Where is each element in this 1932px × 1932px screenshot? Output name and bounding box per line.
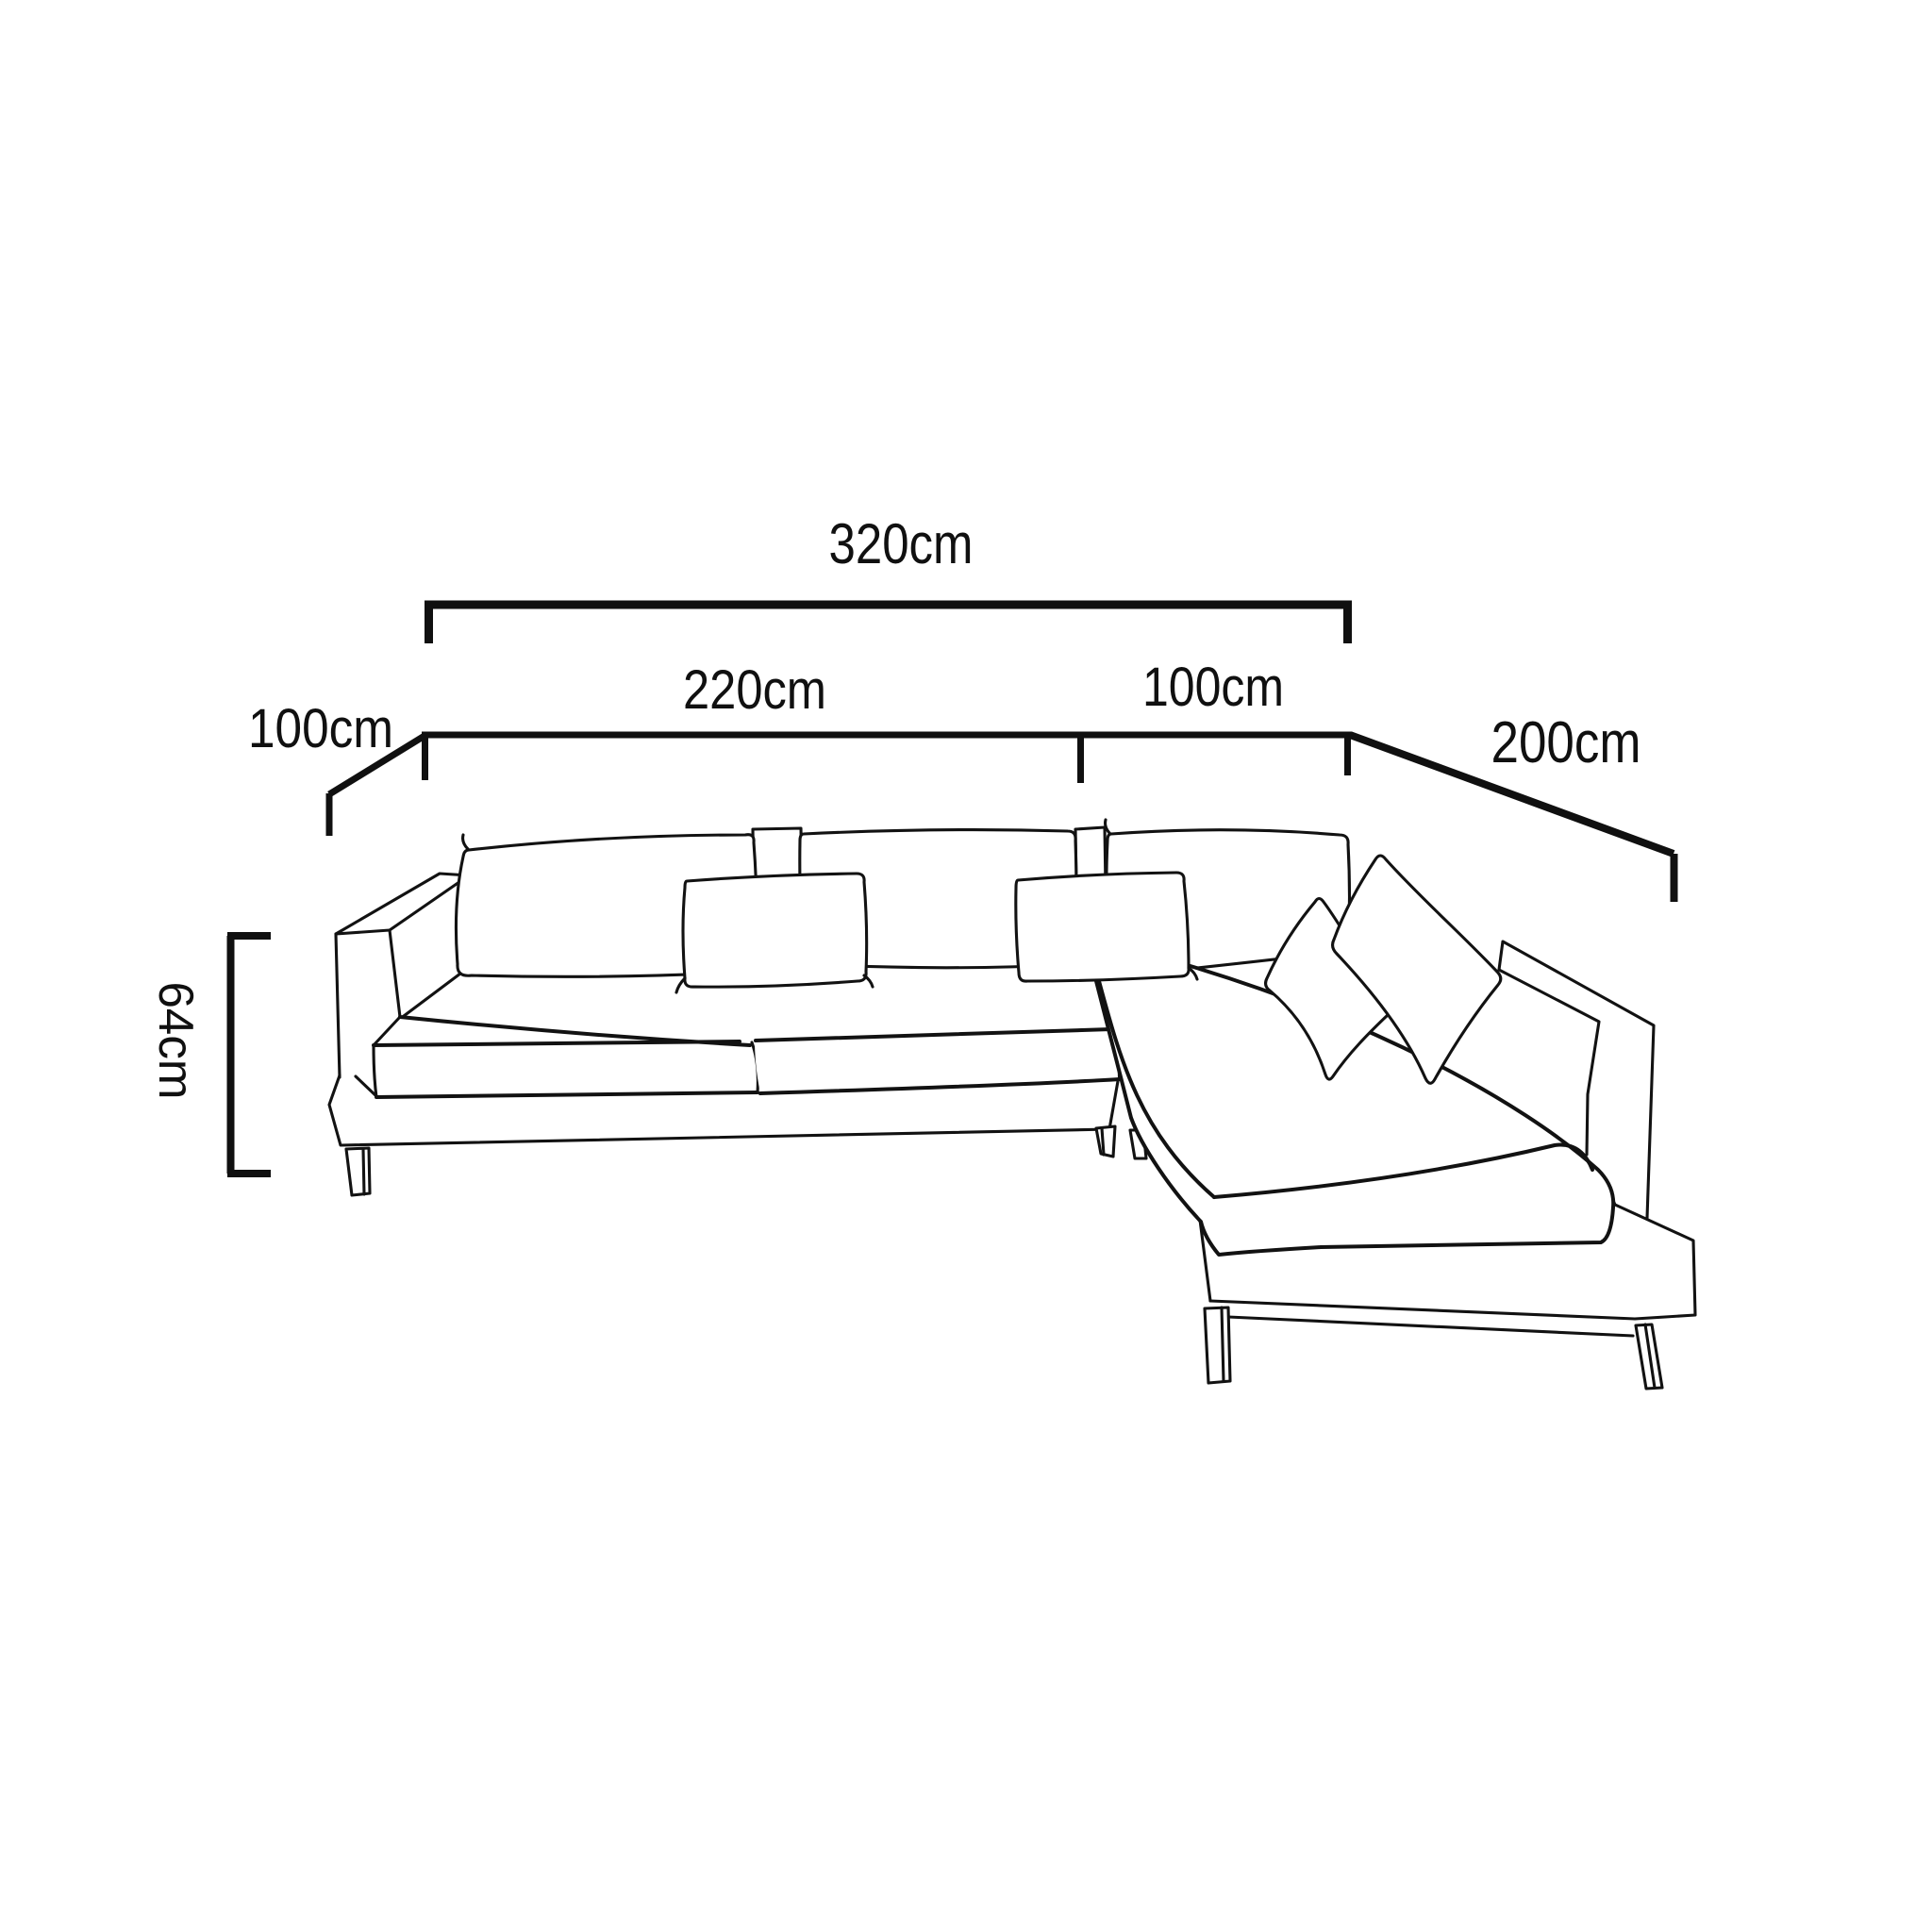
svg-text:200cm: 200cm	[1491, 710, 1641, 775]
svg-text:220cm: 220cm	[683, 659, 826, 721]
svg-text:100cm: 100cm	[1142, 657, 1284, 718]
svg-text:64cm: 64cm	[148, 982, 203, 1100]
svg-text:320cm: 320cm	[829, 512, 974, 575]
svg-text:100cm: 100cm	[248, 698, 393, 759]
